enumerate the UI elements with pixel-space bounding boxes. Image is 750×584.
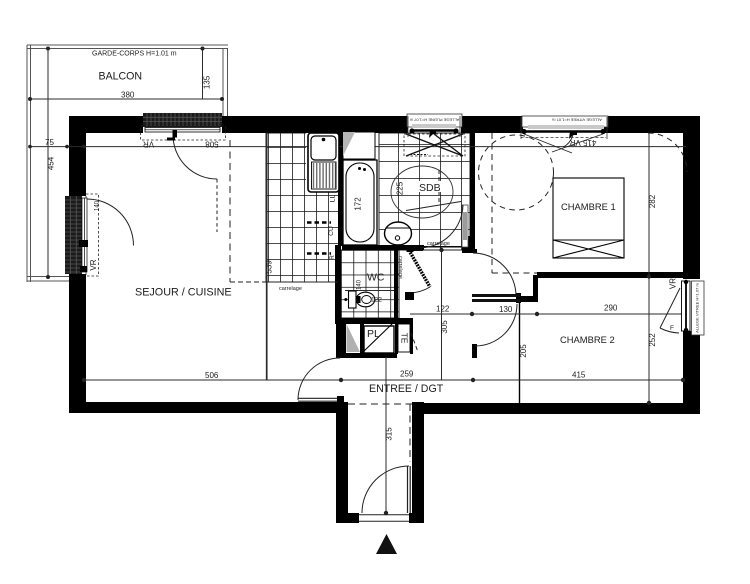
svg-text:415: 415: [572, 371, 586, 380]
svg-text:172: 172: [354, 197, 363, 211]
svg-text:carrelage: carrelage: [397, 256, 403, 279]
svg-text:CU: CU: [328, 226, 335, 236]
svg-text:290: 290: [604, 304, 618, 313]
svg-text:315: 315: [385, 427, 394, 441]
svg-text:140: 140: [357, 279, 363, 290]
svg-text:259: 259: [400, 370, 414, 379]
svg-text:225: 225: [396, 181, 405, 195]
svg-text:carrelage: carrelage: [279, 286, 302, 292]
svg-text:WC: WC: [367, 272, 385, 284]
svg-text:ALLEGE VITREE H=1.07 m: ALLEGE VITREE H=1.07 m: [551, 117, 601, 122]
svg-text:282: 282: [648, 194, 657, 208]
svg-text:506: 506: [205, 371, 219, 380]
svg-text:205: 205: [519, 344, 528, 358]
svg-text:135: 135: [203, 75, 212, 89]
svg-text:122: 122: [436, 305, 450, 314]
svg-text:ALLEGE VITREE H=1.07 m: ALLEGE VITREE H=1.07 m: [695, 282, 700, 332]
svg-text:BALCON: BALCON: [99, 71, 143, 83]
svg-text:CHAMBRE 1: CHAMBRE 1: [561, 201, 616, 212]
svg-text:ALLEGE PLEINE H=1.07 m: ALLEGE PLEINE H=1.07 m: [409, 117, 459, 122]
svg-text:380: 380: [121, 91, 135, 100]
svg-text:252: 252: [648, 333, 657, 347]
svg-text:508: 508: [205, 139, 219, 148]
svg-text:130: 130: [499, 305, 513, 314]
svg-text:140: 140: [95, 200, 101, 211]
svg-text:VR: VR: [89, 259, 98, 270]
svg-text:454: 454: [47, 156, 56, 170]
svg-text:SEJOUR / CUISINE: SEJOUR / CUISINE: [135, 287, 232, 299]
svg-text:415 VR: 415 VR: [569, 138, 596, 147]
svg-text:GARDE-CORPS H=1.01 m: GARDE-CORPS H=1.01 m: [92, 51, 177, 58]
svg-text:CHAMBRE 2: CHAMBRE 2: [560, 334, 615, 345]
svg-text:LL: LL: [329, 195, 336, 203]
svg-text:R: R: [329, 255, 336, 260]
svg-text:VR: VR: [669, 278, 678, 289]
svg-text:305: 305: [440, 320, 449, 334]
svg-text:122: 122: [371, 297, 382, 304]
svg-text:carrelage: carrelage: [427, 241, 450, 247]
svg-text:539: 539: [265, 260, 274, 274]
svg-text:F: F: [670, 325, 674, 332]
svg-text:SDB: SDB: [419, 182, 441, 194]
svg-text:75: 75: [45, 138, 54, 147]
svg-text:TE: TE: [399, 333, 409, 344]
svg-text:PL: PL: [367, 328, 380, 340]
svg-text:VR: VR: [143, 139, 154, 148]
svg-text:ENTREE / DGT: ENTREE / DGT: [369, 383, 444, 395]
